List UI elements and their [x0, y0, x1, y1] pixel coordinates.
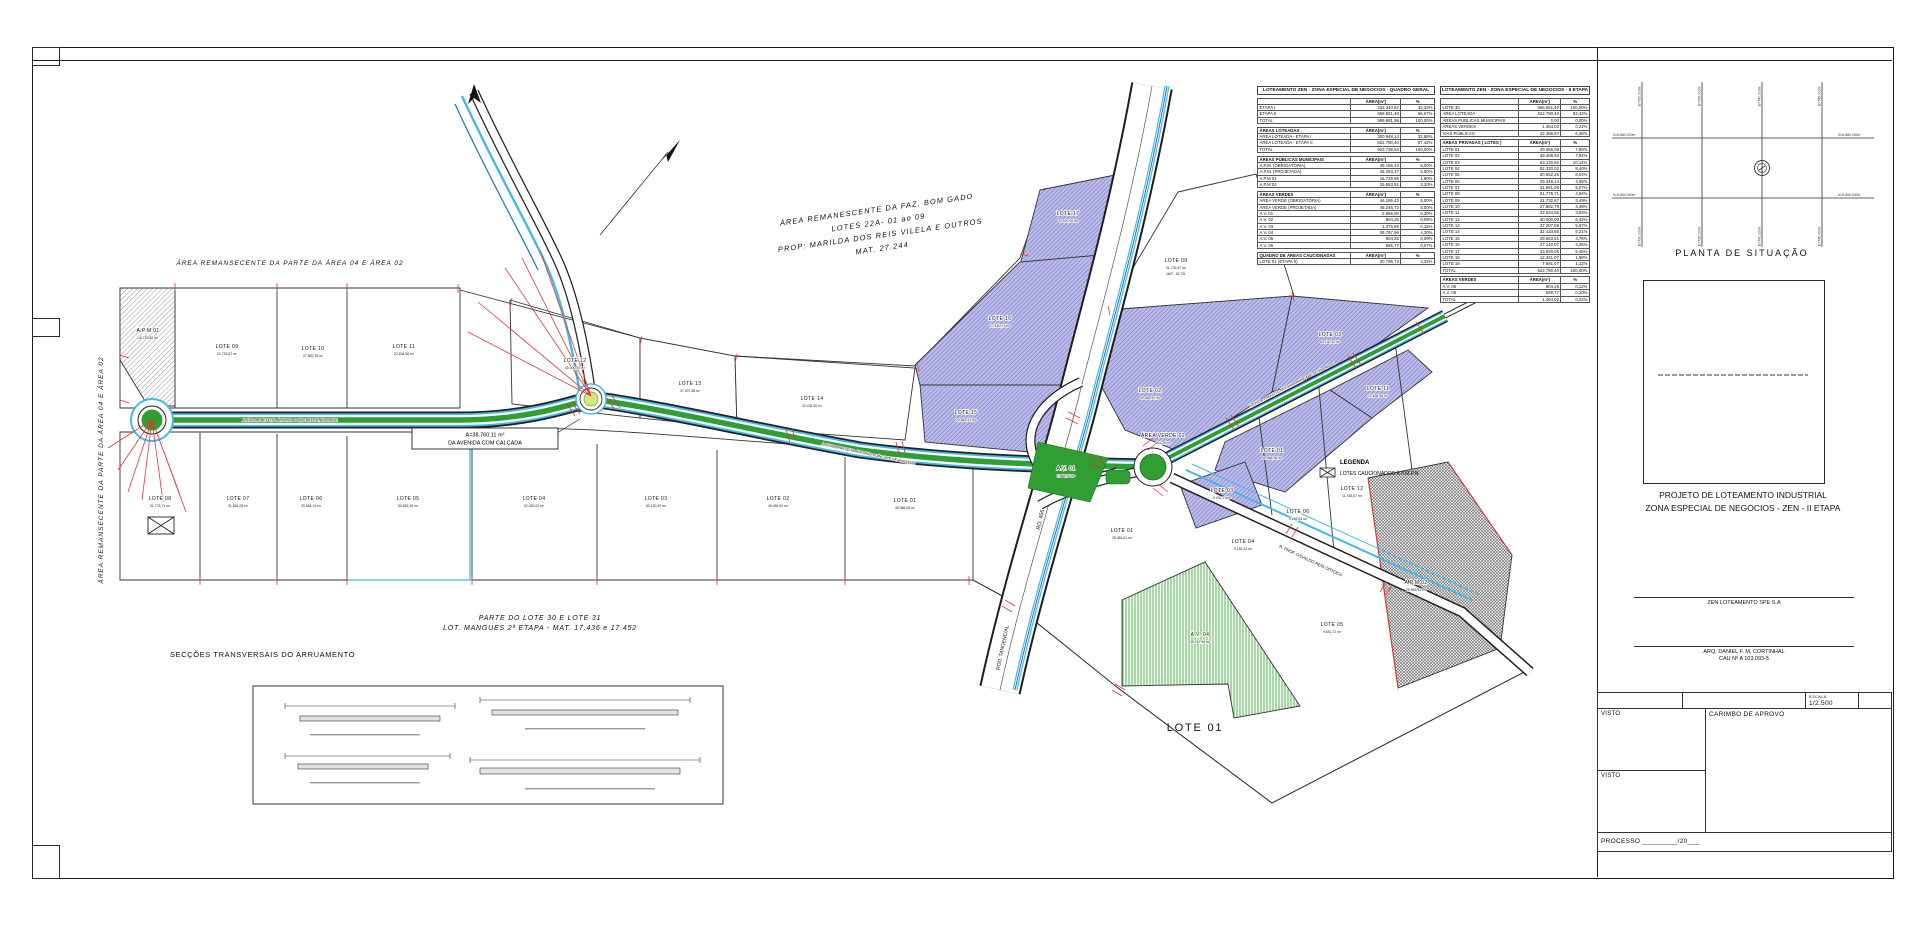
lot-area-label: 29.663,51 m²	[956, 418, 977, 422]
lot-area-label: 33.920,05 m²	[1058, 219, 1079, 223]
lot-area-label: 31.775,71 m²	[150, 504, 171, 508]
table-section: ÁREAS LOTEADASÁREA(m²)%ÁREA LOTEADA - ET…	[1257, 127, 1435, 153]
lot-label: LOTE 10	[302, 346, 325, 352]
lot-label: A.V. 04	[1191, 632, 1210, 638]
lot-label: LOTE 06	[300, 496, 323, 502]
table-row: TOTAL923.738,54100,00%	[1258, 146, 1435, 152]
table-quadro-geral: LOTEAMENTO ZEN - ZONA ESPECIAL DE NEGOCI…	[1257, 86, 1435, 265]
grid-coordinate-label: E=745.000m	[1818, 227, 1822, 246]
architect-name: ARQ. DANIEL F. M. CORTINHAL	[1634, 649, 1854, 655]
lot-area-label: 49.489,92 m²	[768, 504, 789, 508]
tb-cell-visto1: VISTO	[1597, 708, 1706, 771]
grid-coordinate-label: N=6.880.000m	[1613, 133, 1636, 137]
grid-coordinate-label: E=745.000m	[1818, 87, 1822, 106]
lot-label: LOTE 12	[1341, 486, 1364, 492]
table-title: LOTEAMENTO ZEN - ZONA ESPECIAL DE NEGOCI…	[1257, 86, 1435, 95]
grid-coordinate-label: E=740.000m	[1758, 87, 1762, 106]
lot-label: LOTE 16	[989, 316, 1012, 322]
lot-label: LOTE 01	[1261, 448, 1284, 454]
lot-label: LOTE 08	[149, 496, 172, 502]
legend: LEGENDA LOTES CAUCIONADOS À P.M.P.N	[1320, 460, 1419, 477]
callout-line1: A=38.760,11 m²	[466, 433, 505, 439]
table-row: LOTE 01 (ETAPA II)30.795,733,33%	[1258, 259, 1435, 265]
grid-coordinate-label: E=740.000m	[1758, 227, 1762, 246]
parte-lote-line2: LOT. MANGUES 2ª ETAPA - MAT. 17.436 e 17…	[443, 625, 637, 632]
lot-area-label: 27.882,78 m²	[303, 354, 324, 358]
callout-line2: DA AVENIDA COM CALÇADA	[448, 441, 522, 447]
lot-label: LOTE 03	[1319, 332, 1342, 338]
table-cell: 3,33%	[1401, 259, 1435, 265]
escala-label: ESCALA	[1809, 694, 1827, 699]
lot-label: LOTE 04	[1232, 539, 1255, 545]
lot-area-label: 32.434,50 m²	[802, 404, 823, 408]
architect-signature-line	[1634, 646, 1854, 647]
table-row: A.V. 06655,770,07%	[1258, 242, 1435, 248]
owner-name: ZEN LOTEAMENTO SPE S.A	[1634, 600, 1854, 606]
grid-coordinate-label: E=735.000m	[1698, 227, 1702, 246]
lot-label: ÁREA VERDE 02	[1141, 432, 1185, 439]
grid-coordinate-label: E=730.000m	[1638, 87, 1642, 106]
grid-coordinate-label: N=6.850.000m	[1838, 193, 1861, 197]
table-cell: 1.464,02	[1519, 296, 1561, 302]
tb-cell-a2	[1682, 692, 1806, 709]
lot-label: LOTE 11	[1367, 386, 1389, 392]
lot-area-label: 9.431,27 m²	[1213, 496, 1232, 500]
faz-bom-gado-note: ÁREA REMANESCENTE DA FAZ. BOM GADO LOTES…	[774, 191, 985, 267]
lot-label: LOTE 09	[1165, 258, 1188, 264]
table-cell: TOTAL	[1258, 146, 1351, 152]
table-section: ÁREAS VERDESÁREA(m²)%A.V. 05804,250,12%A…	[1440, 276, 1590, 302]
table-section: ÁREA(m²)%ETAPA I333.340,5733,33%ETAPA II…	[1257, 98, 1435, 124]
table-cell: 42.396,97	[1519, 130, 1561, 136]
lot-area-label: 2.866,90 m²	[1057, 474, 1076, 478]
table-title: LOTEAMENTO ZEN - ZONA ESPECIAL DE NEGOCI…	[1440, 86, 1590, 95]
table-row: VIAS PÚBLICAS42.396,976,36%	[1441, 130, 1590, 136]
grid-coordinate-label: E=730.000m	[1638, 227, 1642, 246]
parte-lote-line1: PARTE DO LOTE 30 E LOTE 31	[479, 615, 601, 622]
table-cell: 622.790,40	[1519, 267, 1561, 273]
tb-cell-visto2: VISTO	[1597, 770, 1706, 833]
stamp-micro-text	[1658, 374, 1808, 376]
lot-area-label: 11.765,67 m²	[1342, 494, 1363, 498]
lot-label: LOTE 11	[393, 344, 415, 350]
lot-area-label: 9.641,72 m²	[1323, 630, 1342, 634]
table-cell: 3,20%	[1401, 182, 1435, 188]
lot-area-label: 29.348,14 m²	[301, 504, 322, 508]
lot-area-label: 16.729,86 m²	[138, 336, 159, 340]
table-section: ÁREAS PÚBLICAS MUNICIPAISÁREA(m²)%A.P.M.…	[1257, 156, 1435, 189]
lot-label: A.P.M 01	[136, 328, 159, 334]
lot-label: LOTE 03	[645, 496, 668, 502]
table-cell: 655,77	[1351, 242, 1401, 248]
table-row: TOTAL999.991,98100,00%	[1258, 117, 1435, 123]
lot-label: LOTE 05	[1321, 622, 1344, 628]
lot-label: LOTE 02	[1139, 388, 1162, 394]
visto2-label: VISTO	[1601, 773, 1620, 779]
table-cell: 100,00%	[1401, 146, 1435, 152]
lot-label: LOTE 17	[1057, 211, 1080, 217]
grid-coordinate-label: N=6.850.000m	[1613, 193, 1636, 197]
lot-area-label: 9.265,53 m²	[1289, 517, 1308, 521]
visto1-label: VISTO	[1601, 711, 1620, 717]
lot-label: LOTE 07	[227, 496, 250, 502]
lot-label: A.P.M 02	[1404, 580, 1427, 586]
table-cell: A.P.M 02	[1258, 182, 1351, 188]
cross-sections-box	[253, 686, 723, 804]
tb-cell-a4	[1858, 692, 1892, 709]
tb-cell-escala: ESCALA 1/2.500	[1805, 692, 1859, 709]
lot-polygons	[120, 174, 1532, 803]
legend-item-label: LOTES CAUCIONADOS À P.M.P.N	[1340, 470, 1419, 477]
table-section: ÁREA(m²)%LOTE 30666.651,40100,00%ÁREA LO…	[1440, 98, 1590, 137]
lot-area-label: 31.561,08 m²	[228, 504, 249, 508]
lot-label: LOTE 04	[523, 496, 546, 502]
situacao-title: PLANTA DE SITUAÇÃO	[1627, 248, 1857, 258]
lot-label: LOTE 03	[1211, 488, 1234, 494]
north-indicator	[600, 140, 680, 235]
table-cell: A.V. 06	[1258, 242, 1351, 248]
lot-label: LOTE 05	[397, 496, 420, 502]
owner-signature-line	[1634, 597, 1854, 598]
lot-area-label: 22.634,56 m²	[1368, 394, 1389, 398]
big-lote01-label: LOTE 01	[1167, 722, 1224, 734]
architect-cau: CAU Nº A 103.093-5	[1634, 656, 1854, 662]
table-cell: 100,00%	[1561, 267, 1590, 273]
table-cell: 100,00%	[1401, 117, 1435, 123]
roundabout-east	[1134, 448, 1172, 486]
lot-area-label: 49.066,08 m²	[1262, 456, 1283, 460]
table-cell: 29.553,51	[1351, 182, 1401, 188]
lot-area-label: 27.140,07 m²	[990, 324, 1011, 328]
north-arrow2-icon	[662, 140, 680, 162]
table-cell: 923.738,54	[1351, 146, 1401, 152]
table-cell: TOTAL	[1258, 117, 1351, 123]
table-row: A.P.M 0229.553,513,20%	[1258, 182, 1435, 188]
lot-area-label: 49.489,92 m²	[1140, 396, 1161, 400]
lot-label: LOTE 01	[894, 498, 917, 504]
lot-area-label: 40.000,00 m²	[565, 366, 586, 370]
lot-label: LOTE 06	[1287, 509, 1310, 515]
table-cell: TOTAL	[1441, 296, 1519, 302]
lot-extra-label: MAT - 93.731	[1166, 272, 1185, 276]
lot-area-label: 22.634,56 m²	[394, 352, 415, 356]
roundabout-mid	[576, 384, 606, 414]
table-cell: LOTE 01 (ETAPA II)	[1258, 259, 1351, 265]
lot-area-label: 28.364,61 m²	[1112, 536, 1133, 540]
lot-area-label: 39.767,96 m²	[1190, 640, 1211, 644]
area-rem-top-label: ÁREA REMANSECENTE DA PARTE DA ÁREA 04 E …	[175, 258, 403, 267]
project-title-line1: PROJETO DE LOTEAMENTO INDUSTRIAL	[1613, 490, 1873, 500]
escala-value: 1/2.500	[1809, 700, 1833, 707]
lot-area-label: 49.066,08 m²	[895, 506, 916, 510]
table-section: ÁREAS PRIVADAS ( LOTES )ÁREA(m²)%LOTE 01…	[1440, 139, 1590, 274]
grid-coordinate-label: N=6.880.000m	[1838, 133, 1861, 137]
lot-label: LOTE 01	[1111, 528, 1134, 534]
grid-coordinate-label: E=735.000m	[1698, 87, 1702, 106]
lot-label: LOTE 13	[679, 381, 702, 387]
lot-area-label: 63.130,92 m²	[1320, 340, 1341, 344]
lot-area-label: 21.732,67 m²	[217, 352, 238, 356]
lot-area-label: 29.553,51 m²	[1406, 588, 1427, 592]
project-stamp-box	[1643, 280, 1825, 484]
tb-cell-carimbo: CARIMBO DE APROVO	[1705, 708, 1892, 833]
lot-label: LOTE 15	[955, 410, 978, 416]
table-cell: 6,36%	[1561, 130, 1590, 136]
avenue-name-label-1: AVENIDA PREFEITO ANTONIO POINCARE DE AND…	[242, 419, 338, 423]
legend-title: LEGENDA	[1340, 460, 1370, 466]
lot-area-label: 50.652,26 m²	[398, 504, 419, 508]
svg-text:MAT. 27.244: MAT. 27.244	[855, 240, 910, 256]
lot-area-label: 21.732,67 m²	[1166, 266, 1187, 270]
table-ii-etapa: LOTEAMENTO ZEN - ZONA ESPECIAL DE NEGOCI…	[1440, 86, 1590, 303]
lot-label: LOTE 12	[564, 358, 587, 364]
table-cell: 999.991,98	[1351, 117, 1401, 123]
project-title-line2: ZONA ESPECIAL DE NEGOCIOS - ZEN - II ETA…	[1613, 503, 1873, 513]
lot-label: LOTE 14	[801, 396, 824, 402]
table-cell: 0,22%	[1561, 296, 1590, 302]
carimbo-label: CARIMBO DE APROVO	[1709, 711, 1785, 718]
table-section: QUADRO DE ÁREAS CAUCIONADASÁREA(m²)%LOTE…	[1257, 252, 1435, 266]
lot-area-label: 52.320,02 m²	[524, 504, 545, 508]
table-row: TOTAL1.464,020,22%	[1441, 296, 1590, 302]
table-cell: 0,07%	[1401, 242, 1435, 248]
tb-cell-a1	[1597, 692, 1683, 709]
lot-area-label: 63.130,92 m²	[646, 504, 667, 508]
tb-cell-processo: PROCESSO _________/20___	[1597, 832, 1892, 852]
lot-area-label: 9.182,42 m²	[1234, 547, 1253, 551]
table-cell: TOTAL	[1441, 267, 1519, 273]
lot-label: A.V. 01	[1057, 466, 1076, 472]
lot-area-label: 37.207,58 m²	[680, 389, 701, 393]
table-cell: VIAS PÚBLICAS	[1441, 130, 1519, 136]
caucionado-symbol	[148, 517, 174, 534]
secoes-label: SECÇÕES TRANSVERSAIS DO ARRUAMENTO	[170, 650, 355, 659]
table-row: TOTAL622.790,40100,00%	[1441, 267, 1590, 273]
area-rem-left-label: ÁREA REMANSECENTE DA PARTE DA ÁREA 04 E …	[96, 356, 105, 584]
drawing-sheet: LEGENDA LOTES CAUCIONADOS À P.M.P.N A=38…	[0, 0, 1920, 927]
lot-label: LOTE 02	[767, 496, 790, 502]
lot-area-label: 804,25 m²	[1155, 441, 1171, 445]
situation-plan: E=730.000mE=735.000mE=740.000mE=745.000m…	[1612, 72, 1882, 257]
table-cell: 30.795,73	[1351, 259, 1401, 265]
processo-label: PROCESSO _________/20___	[1601, 838, 1699, 845]
lot-label: LOTE 09	[216, 344, 239, 350]
table-section: ÁREAS VERDESÁREA(m²)%ÁREA VERDE (OBRIGAT…	[1257, 191, 1435, 249]
